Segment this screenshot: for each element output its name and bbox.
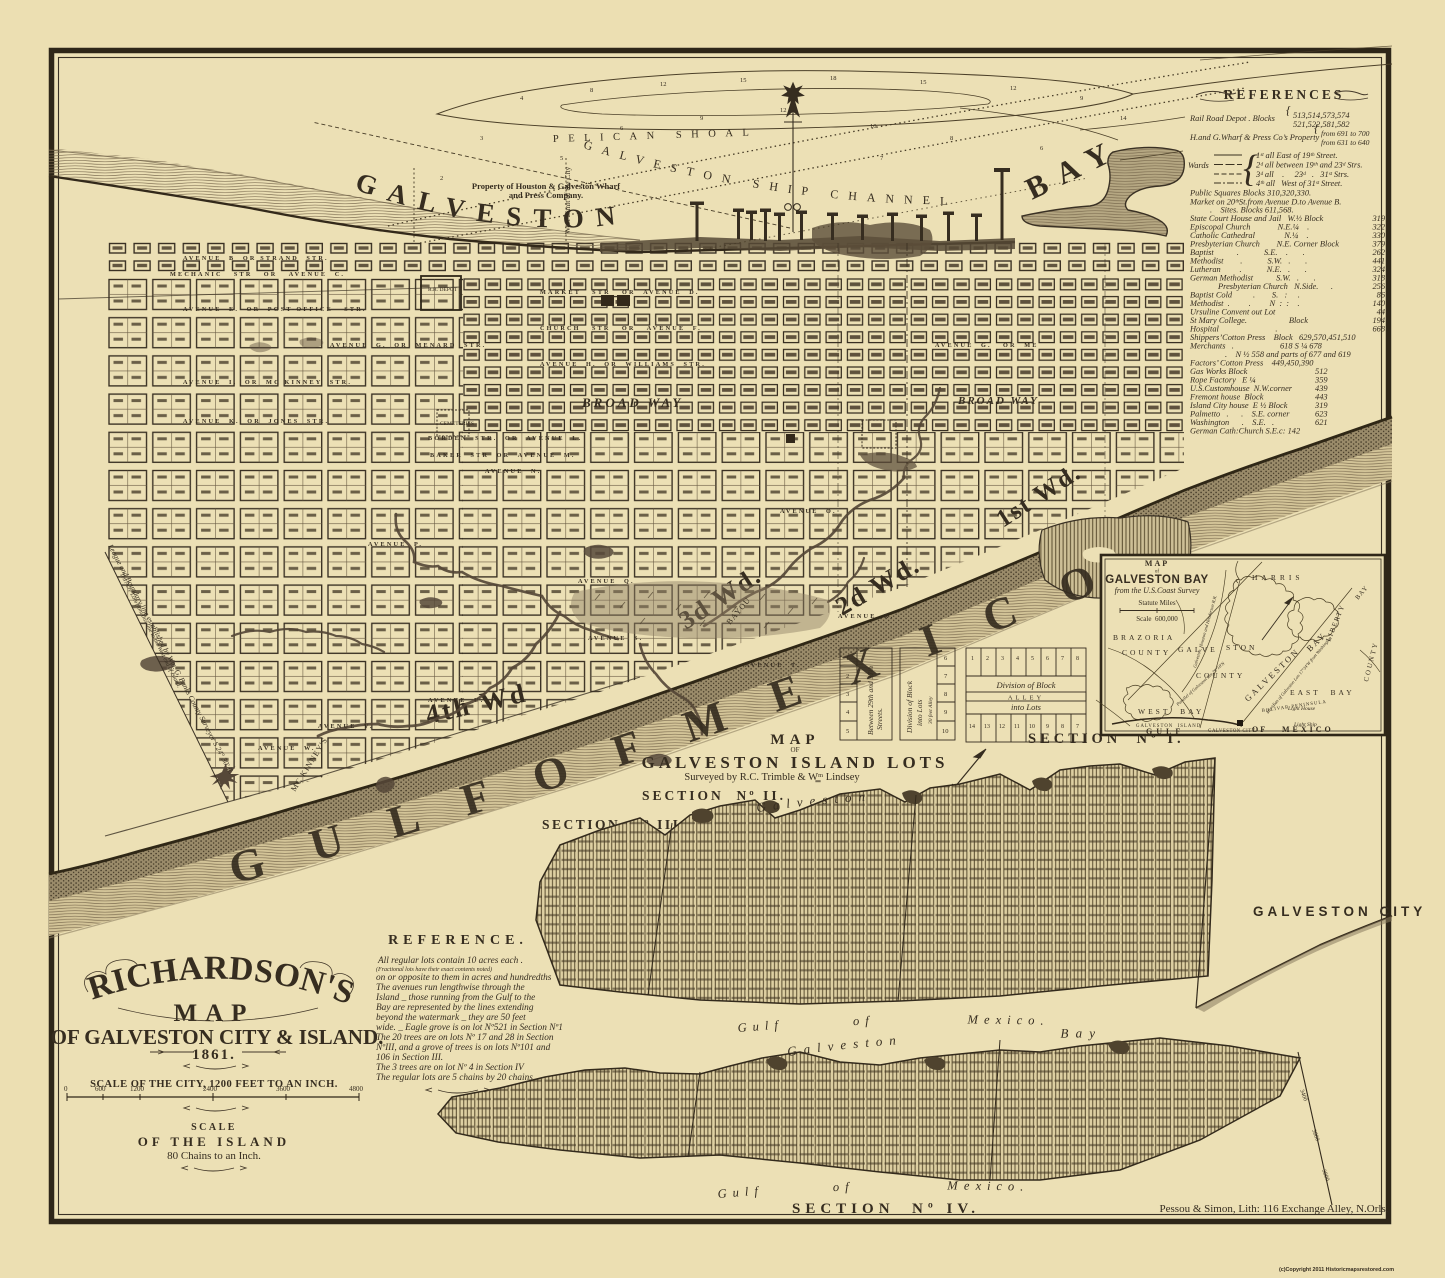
svg-text:Scale 600,000: Scale 600,000 [1136, 615, 1178, 623]
svg-text:STON: STON [1226, 643, 1257, 652]
svg-text:Bay are represented by the lin: Bay are represented by the lines extendi… [376, 1003, 534, 1013]
svg-text:HARRIS: HARRIS [1252, 573, 1304, 582]
svg-text:BRAZORIA: BRAZORIA [1113, 633, 1175, 642]
svg-text:SECTION Nº IV.: SECTION Nº IV. [792, 1201, 980, 1217]
svg-text:5: 5 [1031, 656, 1034, 662]
svg-text:Division of Block: Division of Block [995, 680, 1055, 690]
svg-text:MARKET STR OR AVENUE D.: MARKET STR OR AVENUE D. [540, 289, 700, 296]
svg-text:AVENUE G. OR MENARD STR.: AVENUE G. OR MENARD STR. [330, 342, 486, 349]
svg-text:on or opposite to them in acre: on or opposite to them in acres and hund… [376, 973, 552, 983]
svg-text:REFERENCE.: REFERENCE. [388, 933, 528, 948]
svg-text:3: 3 [480, 135, 483, 142]
svg-text:COUNTY: COUNTY [1122, 648, 1171, 657]
svg-text:(c)Copyright 2011 Historicmaps: (c)Copyright 2011 Historicmapsrestored.c… [1279, 1267, 1394, 1273]
svg-text:3600: 3600 [276, 1085, 291, 1093]
svg-text:1200: 1200 [130, 1085, 145, 1093]
svg-text:80 Chains to an Inch.: 80 Chains to an Inch. [167, 1150, 261, 1162]
svg-text:12: 12 [660, 81, 667, 88]
svg-text:{: { [1286, 103, 1291, 117]
svg-text:beyond the watermark _ they ar: beyond the watermark _ they are 50 feet [376, 1012, 526, 1023]
svg-text:CHURCH STR OR AVENUE F.: CHURCH STR OR AVENUE F. [540, 325, 702, 332]
svg-text:from 691 to 700: from 691 to 700 [1321, 129, 1370, 138]
svg-text:4ᵗʰ all West of 31ˢᵗ Street.: 4ᵗʰ all West of 31ˢᵗ Street. [1256, 179, 1342, 188]
svg-text:AVENUE U.: AVENUE U. [428, 697, 484, 704]
svg-text:CEMETERIES: CEMETERIES [440, 421, 474, 427]
svg-text:OF: OF [1252, 725, 1267, 734]
svg-text:14: 14 [1120, 115, 1127, 122]
svg-text:10: 10 [1029, 724, 1035, 730]
svg-text:9: 9 [700, 115, 703, 122]
svg-text:The regular lots are 5 chains: The regular lots are 5 chains by 20 chai… [376, 1073, 535, 1083]
svg-text:GALVESTON CITY: GALVESTON CITY [1208, 729, 1256, 734]
svg-text:from the U.S.Coast Survey: from the U.S.Coast Survey [1115, 586, 1200, 595]
svg-text:AVENUE N.: AVENUE N. [485, 468, 541, 475]
svg-text:EAST BAY: EAST BAY [1290, 688, 1355, 697]
svg-text:{: { [1243, 148, 1258, 190]
svg-text:GULF: GULF [1146, 727, 1184, 736]
svg-text:10: 10 [942, 728, 949, 735]
svg-text:2: 2 [846, 673, 849, 680]
svg-text:AVENUE R.: AVENUE R. [838, 613, 894, 620]
svg-text:AVENUE S.: AVENUE S. [588, 635, 643, 642]
svg-text:2ᵈ all between 19ᵗʰ and 23ᵈ St: 2ᵈ all between 19ᵗʰ and 23ᵈ Strs. [1256, 161, 1362, 170]
svg-text:8: 8 [590, 87, 593, 94]
svg-text:521,522,581,582: 521,522,581,582 [1293, 120, 1350, 129]
svg-text:1861.: 1861. [192, 1047, 236, 1063]
svg-text:Island _ those running from th: Island _ those running from the Gulf to … [375, 992, 535, 1003]
svg-text:NºIII, and a grove of trees is: NºIII, and a grove of trees is on lots N… [375, 1042, 551, 1053]
svg-text:4: 4 [1016, 656, 1019, 662]
svg-text:13: 13 [984, 724, 990, 730]
svg-text:7: 7 [1061, 656, 1064, 662]
svg-text:30 feet Alley: 30 feet Alley [927, 696, 934, 725]
svg-text:4800: 4800 [349, 1085, 364, 1093]
svg-text:Statute Miles: Statute Miles [1138, 599, 1175, 607]
svg-text:Division of Block: Division of Block [905, 680, 914, 734]
svg-text:Pessou & Simon, Lith: 116 Exch: Pessou & Simon, Lith: 116 Exchange Alley… [1160, 1203, 1389, 1215]
svg-text:621: 621 [1315, 418, 1328, 427]
svg-text:18: 18 [830, 75, 837, 82]
svg-text:GALVESTON ISLAND LOTS: GALVESTON ISLAND LOTS [642, 753, 949, 772]
svg-text:8: 8 [1076, 656, 1079, 662]
svg-text:GALVESTON BAY: GALVESTON BAY [1105, 574, 1208, 586]
svg-text:Wards: Wards [1188, 161, 1209, 170]
svg-text:Surveyed by R.C. Trimble & W͇ᵐ: Surveyed by R.C. Trimble & W͇ᵐ Lindsey [684, 772, 860, 783]
svg-text:AVENUE V.: AVENUE V. [318, 723, 374, 730]
svg-text:West Limit of the City: West Limit of the City [563, 166, 572, 234]
svg-text:668: 668 [1372, 325, 1385, 334]
svg-text:5: 5 [846, 728, 849, 735]
svg-text:wide. _ Eagle grove is on lot: wide. _ Eagle grove is on lot Nº521 in S… [376, 1023, 563, 1033]
svg-text:3: 3 [1001, 656, 1004, 662]
svg-text:into Lots: into Lots [915, 699, 924, 726]
svg-text:BROAD WAY: BROAD WAY [957, 395, 1039, 407]
svg-text:AVENUE P.: AVENUE P. [368, 541, 423, 548]
svg-text:513,514,573,574: 513,514,573,574 [1293, 111, 1350, 120]
svg-text:7: 7 [1076, 724, 1079, 730]
svg-text:MAP: MAP [174, 1000, 255, 1027]
svg-text:The 3 trees are on lot Nº 4 in: The 3 trees are on lot Nº 4 in Section I… [376, 1063, 525, 1073]
svg-text:AVENUE Q.: AVENUE Q. [578, 578, 635, 585]
svg-text:0: 0 [64, 1085, 68, 1093]
svg-text:OF THE ISLAND: OF THE ISLAND [138, 1134, 290, 1149]
svg-text:15: 15 [740, 77, 747, 84]
svg-text:MAP: MAP [1145, 559, 1169, 568]
svg-text:AVENUE E. OR POST-OFFICE: AVENUE E. OR POST-OFFICE STR. [183, 306, 367, 313]
svg-text:REFERENCES: REFERENCES [1224, 87, 1345, 102]
svg-text:2: 2 [440, 175, 443, 182]
svg-text:MEXICO: MEXICO [1282, 725, 1334, 734]
svg-text:{: { [1314, 121, 1319, 135]
svg-text:AVENUE O.: AVENUE O. [780, 508, 837, 515]
svg-text:12: 12 [780, 107, 787, 114]
svg-text:1: 1 [971, 656, 974, 662]
svg-text:1: 1 [846, 655, 849, 662]
svg-text:3: 3 [846, 691, 849, 698]
svg-text:BORDEN STR. OR AVENUE L.: BORDEN STR. OR AVENUE L. [428, 435, 582, 442]
svg-text:AVENUE K. OR JONES STR.: AVENUE K. OR JONES STR. [183, 418, 329, 425]
svg-text:The 20 trees are on lots Nº 17: The 20 trees are on lots Nº 17 and 28 in… [376, 1033, 554, 1043]
svg-text:The avenues run lengthwise thr: The avenues run lengthwise through the [376, 983, 525, 993]
svg-text:GALVESTON CITY: GALVESTON CITY [1253, 904, 1426, 919]
svg-text:from 631 to 640: from 631 to 640 [1321, 138, 1370, 147]
svg-text:1ˢᵗ all East of 19ᵗʰ Street.: 1ˢᵗ all East of 19ᵗʰ Street. [1256, 151, 1338, 160]
svg-text:106 in Section III.: 106 in Section III. [376, 1053, 443, 1063]
svg-text:3ᵈ all . 23ᵈ . 31ˢᵗ: 3ᵈ all . 23ᵈ . 31ˢᵗ Strs. [1255, 170, 1349, 179]
svg-text:WEST BAY: WEST BAY [1138, 707, 1204, 716]
svg-text:Streets.: Streets. [875, 708, 884, 730]
svg-text:AVENUE G. OR ME: AVENUE G. OR ME [935, 342, 1039, 349]
svg-text:All regular lots contain 10 ac: All regular lots contain 10 acres each . [377, 956, 523, 966]
svg-text:into Lots: into Lots [1011, 702, 1042, 712]
svg-text:9: 9 [1046, 724, 1049, 730]
svg-text:Rail Road Depot . Blocks: Rail Road Depot . Blocks [1189, 114, 1275, 123]
svg-text:15: 15 [920, 79, 927, 86]
svg-text:OF GALVESTON CITY & ISLAND.: OF GALVESTON CITY & ISLAND. [51, 1025, 384, 1049]
svg-text:(Fractional lots have their ex: (Fractional lots have their exact conten… [376, 966, 492, 973]
svg-text:6: 6 [1046, 656, 1049, 662]
svg-text:5: 5 [560, 155, 563, 162]
svg-text:8: 8 [950, 135, 953, 142]
svg-text:12: 12 [999, 724, 1005, 730]
svg-text:9: 9 [1080, 95, 1083, 102]
svg-text:AVENUE B OR STRAND STR.: AVENUE B OR STRAND STR. [183, 255, 329, 262]
svg-text:H.and G.Wharf & Press Co’s Pro: H.and G.Wharf & Press Co’s Property [1189, 133, 1320, 142]
svg-text:12: 12 [1010, 85, 1017, 92]
svg-text:AVENUE H. OR WILLIAMS STR.: AVENUE H. OR WILLIAMS STR. [540, 361, 706, 368]
svg-text:14: 14 [969, 724, 975, 730]
svg-text:Between 29th and 37th: Between 29th and 37th [866, 666, 875, 735]
svg-text:BAKER STR OR AVENUE M.: BAKER STR OR AVENUE M. [430, 452, 576, 459]
svg-text:8: 8 [944, 691, 947, 698]
svg-text:MECHANIC STR OR AVENUE: MECHANIC STR OR AVENUE C. [170, 271, 345, 278]
svg-text:BROAD WAY: BROAD WAY [581, 395, 683, 410]
svg-text:600: 600 [95, 1085, 106, 1093]
svg-text:10: 10 [870, 123, 877, 130]
svg-text:2: 2 [986, 656, 989, 662]
svg-text:AVENUE I. OR MC KINNEY STR: AVENUE I. OR MC KINNEY STR. [183, 379, 352, 386]
svg-text:German Cath:Church S.E.c: 142: German Cath:Church S.E.c: 142 [1190, 427, 1300, 436]
svg-text:9: 9 [944, 709, 947, 716]
svg-text:8: 8 [1061, 724, 1064, 730]
svg-text:SCALE: SCALE [191, 1122, 237, 1133]
svg-text:AVENUE W.: AVENUE W. [258, 745, 316, 752]
svg-text:11: 11 [1014, 724, 1020, 730]
svg-text:ALLEY: ALLEY [1008, 695, 1044, 702]
svg-text:Light House: Light House [1287, 706, 1316, 712]
svg-text:2400: 2400 [203, 1085, 218, 1093]
